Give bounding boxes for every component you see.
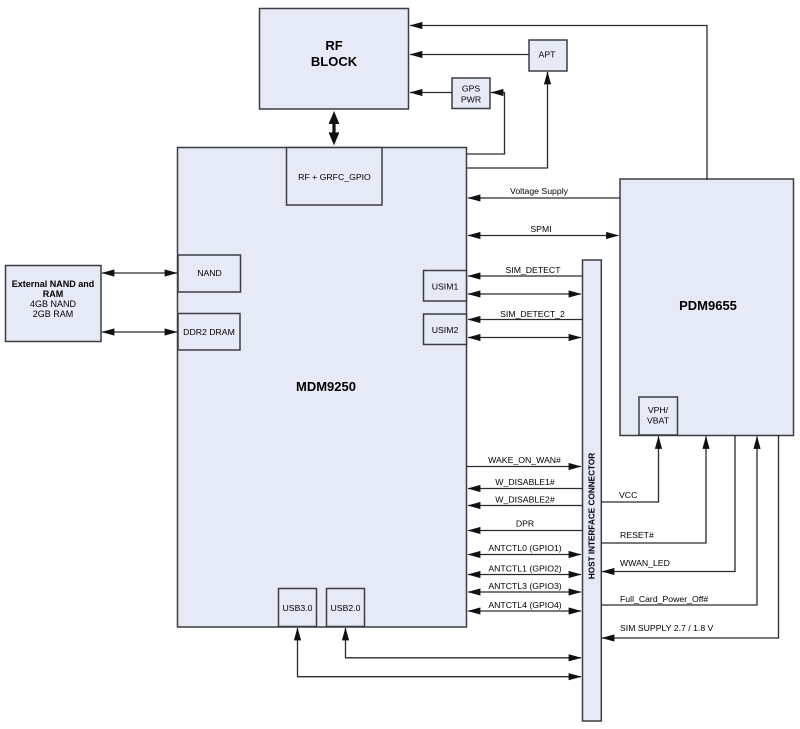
svg-text:ANTCTL0 (GPIO1): ANTCTL0 (GPIO1) — [488, 543, 561, 553]
svg-text:USB2.0: USB2.0 — [331, 603, 361, 613]
svg-text:PWR: PWR — [461, 95, 481, 105]
svg-text:SIM_DETECT: SIM_DETECT — [505, 265, 561, 275]
svg-text:Full_Card_Power_Off#: Full_Card_Power_Off# — [620, 594, 708, 604]
svg-text:W_DISABLE2#: W_DISABLE2# — [495, 495, 555, 505]
svg-text:External NAND and: External NAND and — [12, 279, 95, 289]
svg-text:BLOCK: BLOCK — [311, 54, 358, 69]
svg-text:USIM2: USIM2 — [432, 325, 459, 335]
svg-text:SPMI: SPMI — [530, 224, 551, 234]
svg-text:NAND: NAND — [197, 268, 222, 278]
svg-text:GPS: GPS — [462, 84, 481, 94]
svg-text:SIM_DETECT_2: SIM_DETECT_2 — [500, 309, 565, 319]
svg-text:ANTCTL4 (GPIO4): ANTCTL4 (GPIO4) — [488, 600, 561, 610]
svg-text:4GB NAND: 4GB NAND — [30, 299, 77, 309]
svg-text:SIM SUPPLY 2.7 / 1.8 V: SIM SUPPLY 2.7 / 1.8 V — [620, 623, 714, 633]
svg-text:USB3.0: USB3.0 — [283, 603, 313, 613]
svg-text:DPR: DPR — [516, 519, 534, 529]
svg-text:DDR2 DRAM: DDR2 DRAM — [183, 327, 235, 337]
svg-text:Voltage Supply: Voltage Supply — [510, 186, 569, 196]
svg-text:MDM9250: MDM9250 — [296, 379, 356, 394]
svg-text:RF: RF — [325, 38, 342, 53]
svg-text:RF + GRFC_GPIO: RF + GRFC_GPIO — [298, 172, 371, 182]
svg-text:WAKE_ON_WAN#: WAKE_ON_WAN# — [488, 455, 561, 465]
svg-text:VCC: VCC — [619, 490, 637, 500]
svg-text:ANTCTL3 (GPIO3): ANTCTL3 (GPIO3) — [488, 581, 561, 591]
svg-text:2GB RAM: 2GB RAM — [33, 309, 74, 319]
svg-text:APT: APT — [539, 50, 557, 60]
svg-text:W_DISABLE1#: W_DISABLE1# — [495, 477, 555, 487]
svg-text:PDM9655: PDM9655 — [679, 298, 737, 313]
svg-text:ANTCTL1 (GPIO2): ANTCTL1 (GPIO2) — [488, 564, 561, 574]
svg-text:WWAN_LED: WWAN_LED — [620, 558, 670, 568]
svg-text:HOST INTERFACE CONNECTOR: HOST INTERFACE CONNECTOR — [587, 453, 596, 579]
svg-text:RESET#: RESET# — [620, 530, 654, 540]
svg-text:USIM1: USIM1 — [432, 282, 459, 292]
svg-text:VBAT: VBAT — [647, 416, 670, 426]
svg-text:RAM: RAM — [43, 289, 64, 299]
svg-text:VPH/: VPH/ — [648, 405, 669, 415]
